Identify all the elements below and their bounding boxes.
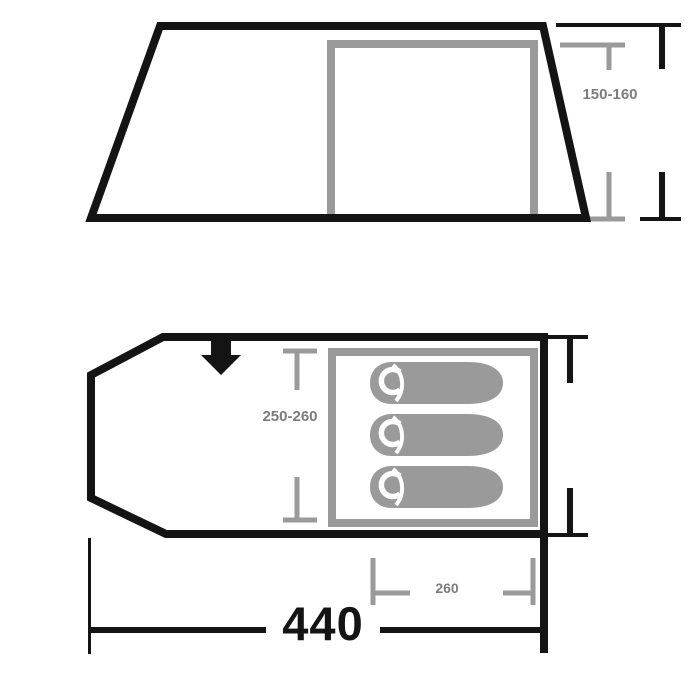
sleeping-bag-icon [370, 466, 503, 508]
plan-depth-dimension-marks [546, 337, 588, 535]
side-view-outline [91, 26, 586, 218]
diagram-drawing [0, 0, 700, 700]
outer-height-dimension-marks [556, 25, 681, 219]
inner-width-dimension-marks [283, 351, 317, 520]
tent-dimensions-diagram: 150-160 250-260 260 440 [0, 0, 700, 700]
entrance-down-arrow-icon [201, 337, 241, 375]
sleeping-bag-icon [370, 414, 503, 456]
side-height-dimension-label: 150-160 [582, 87, 637, 103]
side-view-inner-tent [331, 44, 534, 218]
inner-width-dimension-label: 250-260 [262, 409, 317, 425]
side-view [91, 25, 681, 219]
inner-length-dimension-label: 260 [435, 580, 458, 596]
overall-length-dimension-label: 440 [282, 600, 363, 648]
sleeping-bag-icon [370, 362, 503, 404]
